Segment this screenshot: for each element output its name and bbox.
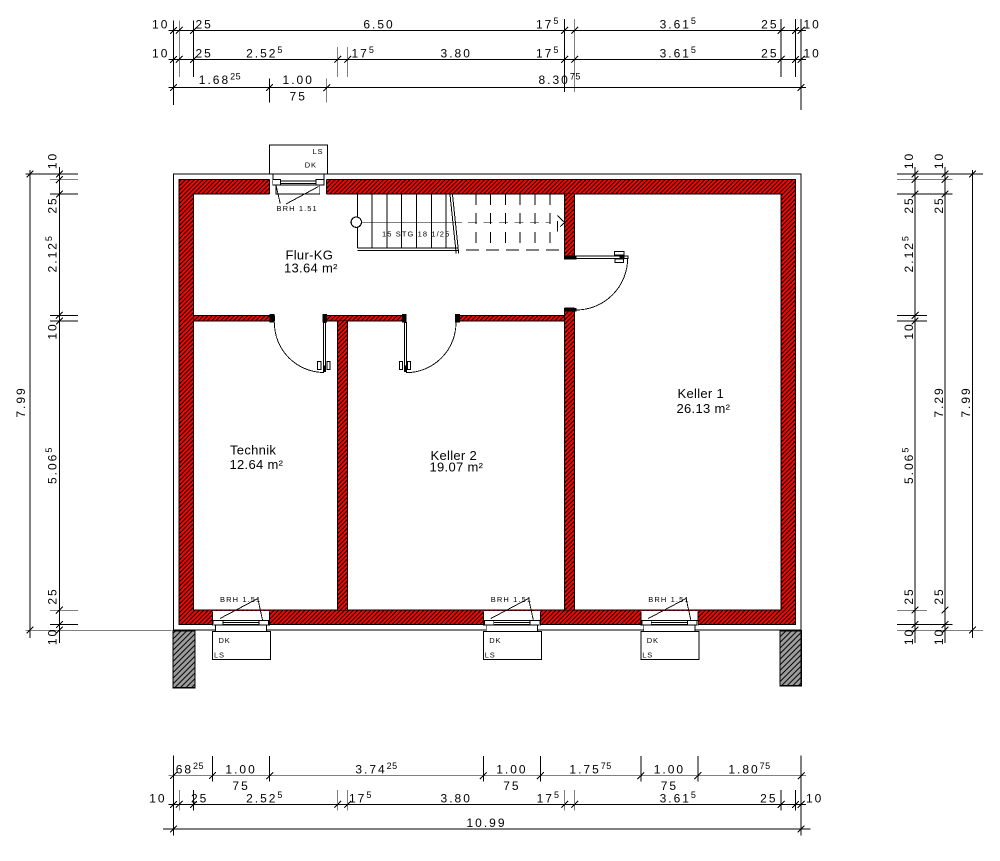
- svg-text:25: 25: [902, 587, 916, 604]
- svg-text:3.80: 3.80: [441, 791, 472, 805]
- svg-text:10: 10: [902, 152, 916, 169]
- svg-text:25: 25: [196, 17, 213, 31]
- svg-text:1.00: 1.00: [283, 73, 314, 87]
- svg-text:10: 10: [46, 322, 60, 339]
- svg-text:2.525: 2.525: [246, 45, 283, 61]
- svg-text:BRH 1.51: BRH 1.51: [277, 204, 318, 213]
- svg-text:6.50: 6.50: [363, 17, 394, 31]
- svg-text:2.525: 2.525: [246, 790, 283, 806]
- svg-text:3.615: 3.615: [660, 790, 697, 806]
- svg-text:5.065: 5.065: [44, 447, 60, 484]
- svg-text:25: 25: [932, 587, 946, 604]
- svg-text:75: 75: [503, 779, 520, 793]
- svg-text:BRH 1.51: BRH 1.51: [491, 595, 532, 604]
- svg-text:25: 25: [932, 196, 946, 213]
- svg-text:25: 25: [902, 196, 916, 213]
- svg-text:1.00: 1.00: [654, 763, 685, 777]
- svg-text:DK: DK: [219, 636, 231, 645]
- svg-text:LS: LS: [214, 651, 225, 660]
- svg-text:25: 25: [761, 17, 778, 31]
- svg-text:25: 25: [761, 46, 778, 60]
- svg-text:10: 10: [152, 46, 169, 60]
- svg-text:10: 10: [932, 152, 946, 169]
- svg-text:15 STG 18 1/25: 15 STG 18 1/25: [382, 230, 450, 239]
- svg-text:10: 10: [804, 46, 821, 60]
- svg-text:25: 25: [196, 46, 213, 60]
- svg-text:7.29: 7.29: [932, 386, 946, 417]
- svg-text:LS: LS: [485, 651, 496, 660]
- svg-text:BRH 1.51: BRH 1.51: [648, 595, 689, 604]
- svg-text:75: 75: [290, 90, 307, 104]
- svg-text:13.64 m²: 13.64 m²: [284, 261, 338, 276]
- svg-text:25: 25: [760, 791, 777, 805]
- svg-text:3.615: 3.615: [660, 16, 697, 32]
- svg-text:2.125: 2.125: [901, 236, 917, 273]
- svg-text:26.13 m²: 26.13 m²: [677, 401, 731, 416]
- svg-text:DK: DK: [647, 636, 659, 645]
- svg-text:25: 25: [46, 587, 60, 604]
- svg-text:5.065: 5.065: [901, 447, 917, 484]
- svg-text:10: 10: [46, 152, 60, 169]
- svg-text:10: 10: [806, 791, 823, 805]
- svg-text:25: 25: [46, 196, 60, 213]
- svg-text:Keller 1: Keller 1: [678, 386, 724, 401]
- svg-text:10: 10: [152, 17, 169, 31]
- svg-text:LS: LS: [313, 147, 324, 156]
- svg-text:7.99: 7.99: [959, 386, 973, 417]
- svg-text:DK: DK: [305, 161, 317, 170]
- svg-text:3.80: 3.80: [441, 46, 472, 60]
- svg-text:19.07 m²: 19.07 m²: [430, 460, 484, 475]
- svg-text:12.64 m²: 12.64 m²: [230, 457, 284, 472]
- svg-text:10: 10: [902, 322, 916, 339]
- svg-text:Technik: Technik: [230, 443, 276, 458]
- svg-text:10: 10: [149, 791, 166, 805]
- svg-text:DK: DK: [489, 636, 501, 645]
- svg-text:LS: LS: [642, 651, 653, 660]
- svg-text:10.99: 10.99: [466, 816, 506, 830]
- svg-text:3.615: 3.615: [660, 45, 697, 61]
- svg-text:2.125: 2.125: [44, 236, 60, 273]
- svg-text:7.99: 7.99: [14, 386, 28, 417]
- svg-text:BRH 1.51: BRH 1.51: [220, 595, 261, 604]
- svg-text:1.00: 1.00: [225, 763, 256, 777]
- svg-text:1.00: 1.00: [496, 763, 527, 777]
- svg-text:10: 10: [804, 17, 821, 31]
